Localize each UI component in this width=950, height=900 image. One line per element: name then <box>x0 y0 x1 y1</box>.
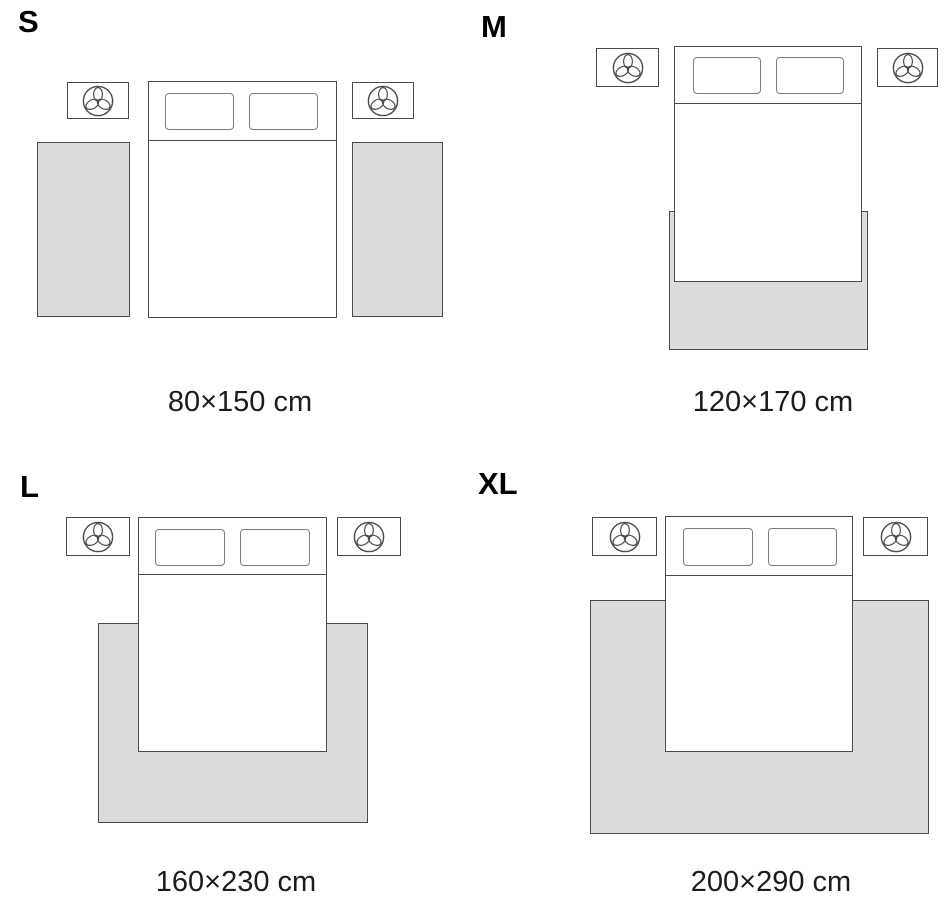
pillow-left <box>683 528 753 566</box>
panel-size-xl: XL <box>475 450 950 900</box>
plant-top-view-icon <box>82 521 114 553</box>
pillow-right <box>249 93 318 130</box>
plant-top-view-icon <box>82 85 114 117</box>
rug-dimensions-s: 80×150 cm <box>168 388 312 417</box>
bed-top-view <box>138 517 327 752</box>
panel-size-l: L <box>0 450 475 900</box>
size-label-xl: XL <box>478 468 518 499</box>
nightstand-left <box>592 517 657 556</box>
plant-top-view-icon <box>353 521 385 553</box>
nightstand-right <box>877 48 938 87</box>
plant-top-view-icon <box>880 521 912 553</box>
plant-top-view-icon <box>609 521 641 553</box>
pillow-right <box>768 528 837 566</box>
bed-top-view <box>665 516 853 752</box>
plant-top-view-icon <box>367 85 399 117</box>
headboard <box>666 517 852 576</box>
pillow-left <box>693 57 761 94</box>
pillow-right <box>240 529 310 566</box>
pillow-right <box>776 57 844 94</box>
nightstand-left <box>67 82 129 119</box>
nightstand-left <box>596 48 659 87</box>
rug-dimensions-m: 120×170 cm <box>693 388 853 417</box>
size-label-l: L <box>20 471 39 502</box>
headboard <box>675 47 861 104</box>
rug-dimensions-xl: 200×290 cm <box>691 868 851 897</box>
rug-right <box>352 142 443 317</box>
nightstand-right <box>863 517 928 556</box>
bed-top-view <box>148 81 337 318</box>
bed-top-view <box>674 46 862 282</box>
panel-size-m: M <box>475 0 950 450</box>
rug-left <box>37 142 130 317</box>
headboard <box>149 82 336 141</box>
panel-size-s: S <box>0 0 475 450</box>
rug-size-guide: S <box>0 0 950 900</box>
rug-dimensions-l: 160×230 cm <box>156 868 316 897</box>
size-label-s: S <box>18 6 39 37</box>
pillow-left <box>165 93 234 130</box>
nightstand-right <box>352 82 414 119</box>
size-label-m: M <box>481 11 507 42</box>
pillow-left <box>155 529 225 566</box>
nightstand-left <box>66 517 130 556</box>
nightstand-right <box>337 517 401 556</box>
headboard <box>139 518 326 575</box>
plant-top-view-icon <box>612 52 644 84</box>
plant-top-view-icon <box>892 52 924 84</box>
